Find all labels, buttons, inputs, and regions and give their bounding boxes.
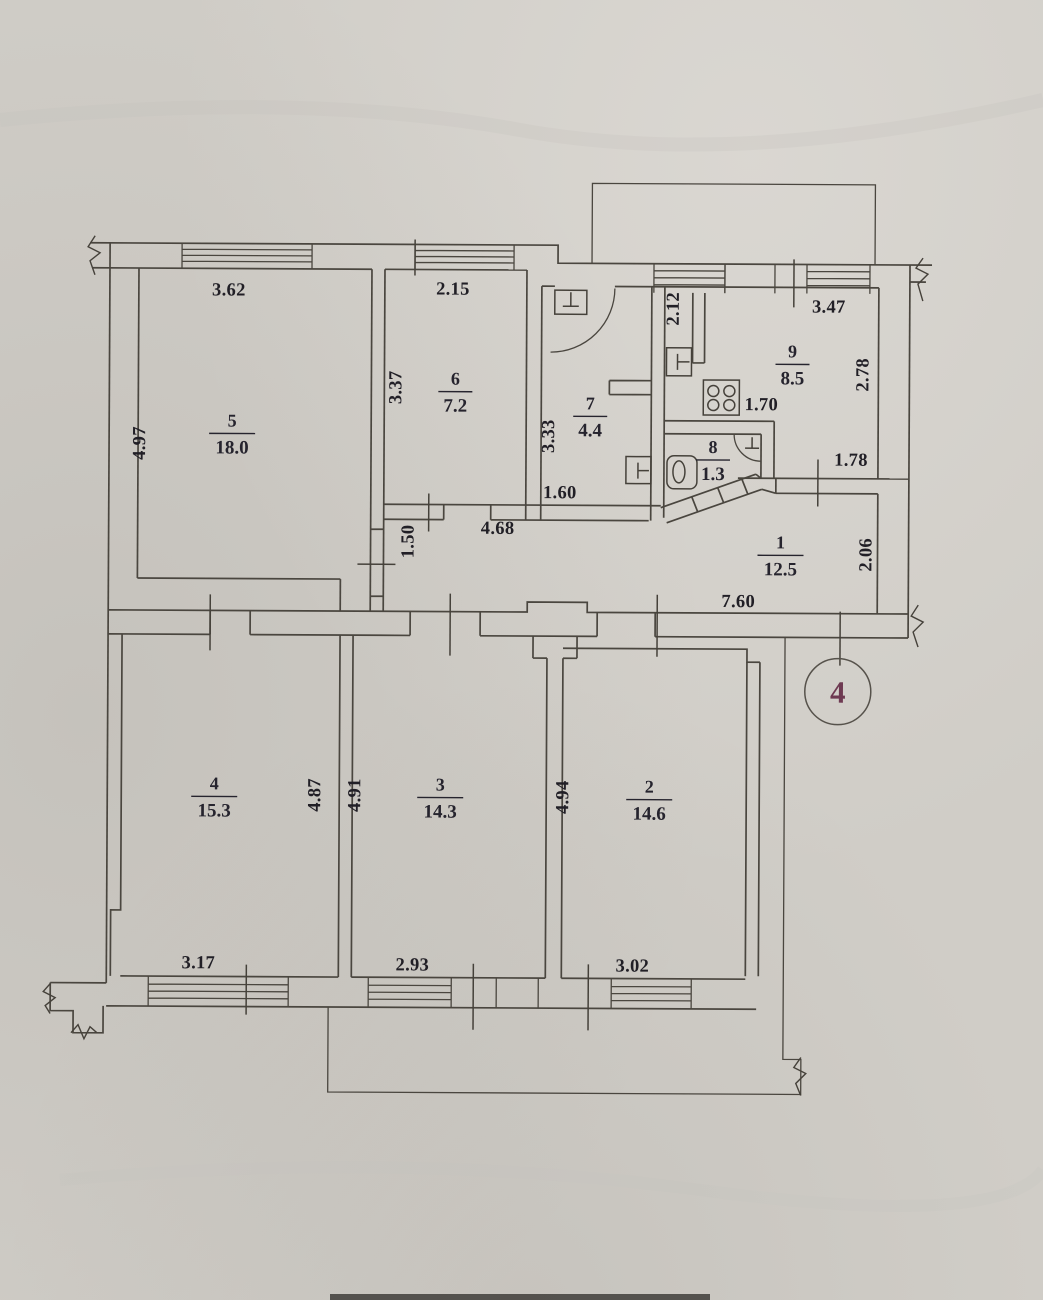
photo-shadow-strip (330, 1294, 710, 1300)
paper-background (0, 0, 1043, 1300)
room-area-9: 8.5 (780, 368, 804, 389)
room-number-7: 7 (586, 393, 595, 413)
room-number-4: 4 (210, 773, 219, 793)
floor-plan-svg: 4 112.5214.6314.3415.3518.067.274.481.39… (0, 0, 1043, 1300)
room-number-3: 3 (436, 775, 445, 795)
room-number-9: 9 (788, 341, 797, 361)
dimension-label-3.62: 3.62 (212, 280, 246, 300)
sheet-number: 4 (830, 675, 846, 710)
room-area-8: 1.3 (701, 464, 725, 485)
dimension-label-2.78: 2.78 (853, 358, 873, 392)
room-area-6: 7.2 (443, 396, 467, 417)
dimension-label-1.78: 1.78 (834, 451, 868, 471)
dimension-label-3.33: 3.33 (539, 419, 559, 453)
dimension-label-2.06: 2.06 (856, 538, 876, 572)
room-area-5: 18.0 (215, 437, 248, 458)
room-area-7: 4.4 (578, 420, 602, 441)
dimension-label-3.02: 3.02 (616, 957, 650, 977)
dimension-label-2.12: 2.12 (664, 292, 684, 326)
dimension-label-1.60: 1.60 (543, 483, 577, 503)
dimension-label-2.93: 2.93 (396, 955, 430, 975)
dimension-label-1.50: 1.50 (398, 525, 418, 559)
dimension-label-4.97: 4.97 (130, 426, 150, 460)
floor-plan-scan: 4 112.5214.6314.3415.3518.067.274.481.39… (0, 0, 1043, 1300)
room-area-1: 12.5 (764, 559, 797, 580)
room-area-3: 14.3 (423, 801, 456, 822)
dimension-label-2.15: 2.15 (436, 280, 470, 300)
dimension-label-3.17: 3.17 (182, 953, 216, 973)
dimension-label-4.68: 4.68 (481, 519, 515, 539)
room-number-2: 2 (645, 777, 654, 797)
room-number-1: 1 (776, 532, 785, 552)
dimension-label-7.60: 7.60 (721, 592, 755, 612)
dimension-label-3.37: 3.37 (386, 371, 406, 405)
dimension-label-3.47: 3.47 (812, 298, 846, 318)
room-number-5: 5 (228, 410, 237, 430)
dimension-label-4.91: 4.91 (345, 778, 365, 812)
room-number-6: 6 (451, 369, 460, 389)
room-number-8: 8 (709, 437, 718, 457)
dimension-label-1.70: 1.70 (744, 395, 778, 415)
room-area-2: 14.6 (632, 804, 665, 825)
room-area-4: 15.3 (197, 800, 230, 821)
dimension-label-4.87: 4.87 (305, 778, 325, 812)
dimension-label-4.94: 4.94 (553, 780, 573, 814)
